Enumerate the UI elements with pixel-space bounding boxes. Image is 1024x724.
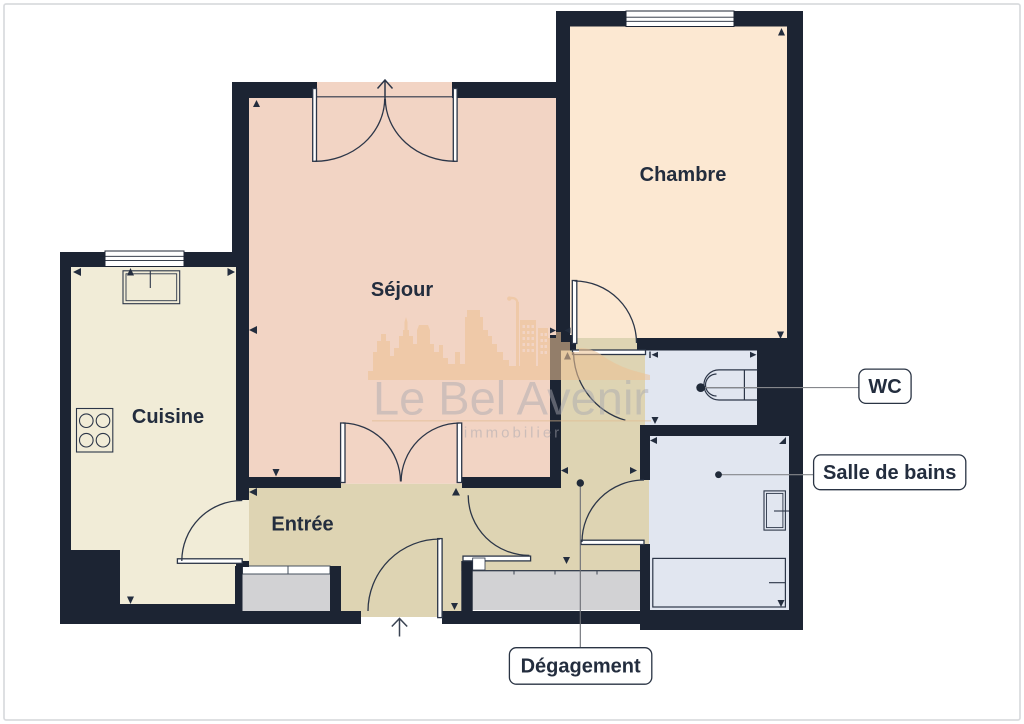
svg-text:Le Bel Avenir: Le Bel Avenir xyxy=(373,372,649,425)
svg-text:Séjour: Séjour xyxy=(371,279,433,301)
svg-text:Cuisine: Cuisine xyxy=(132,406,204,428)
svg-text:Chambre: Chambre xyxy=(640,164,727,186)
svg-text:immobilier: immobilier xyxy=(464,425,562,442)
svg-text:Salle de bains: Salle de bains xyxy=(823,462,956,484)
svg-text:Dégagement: Dégagement xyxy=(521,656,641,678)
svg-text:WC: WC xyxy=(868,376,901,398)
svg-text:Entrée: Entrée xyxy=(271,514,333,536)
